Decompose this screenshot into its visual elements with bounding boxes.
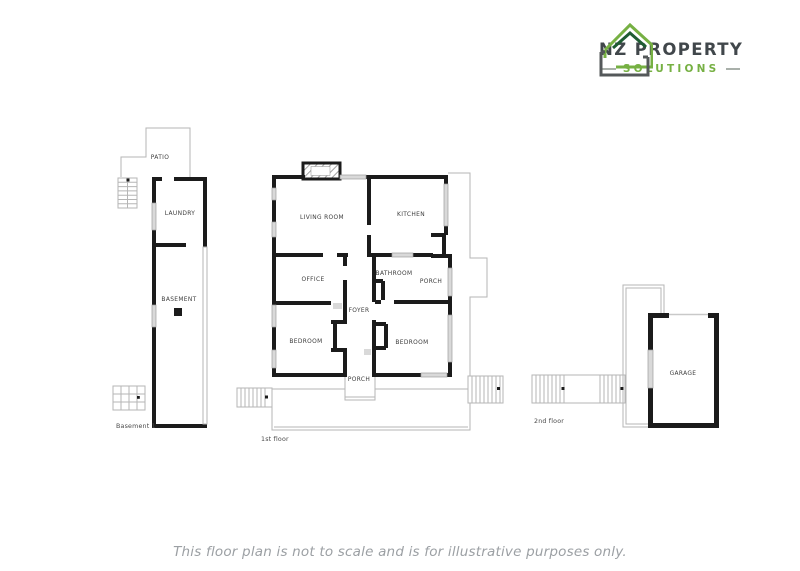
room-label-porch-bottom: PORCH — [348, 377, 370, 383]
room-label-bathroom: BATHROOM — [376, 271, 413, 277]
disclaimer-text: This floor plan is not to scale and is f… — [0, 544, 800, 560]
room-label-living-room: LIVING ROOM — [300, 215, 344, 221]
room-label-kitchen: KITCHEN — [397, 212, 425, 218]
basement-column — [174, 308, 182, 316]
plan-caption-first-floor: 1st floor — [261, 436, 289, 443]
stair-direction-marker — [265, 396, 268, 399]
room-label-bedroom-left: BEDROOM — [289, 339, 322, 345]
stair-direction-marker — [621, 387, 624, 390]
fireplace — [303, 163, 340, 179]
second-floor-landing-outline — [623, 285, 664, 427]
plan-caption-basement: Basement 1 — [116, 423, 156, 430]
room-label-patio: PATIO — [151, 155, 169, 161]
garage-window — [648, 350, 653, 388]
stair-direction-marker — [137, 396, 140, 399]
second-floor-walkway-stairs — [532, 375, 625, 403]
room-label-laundry: LAUNDRY — [165, 211, 196, 217]
stair-direction-marker — [127, 179, 130, 182]
room-label-basement: BASEMENT — [161, 297, 196, 303]
stair-direction-marker — [562, 387, 565, 390]
first-floor-plan: LIVING ROOM KITCHEN OFFICE BATHROOM PORC… — [237, 163, 503, 443]
first-floor-windows — [272, 175, 452, 377]
basement-plan: PATIO LAUNDRY BASEMENT Basement 1 — [113, 128, 207, 430]
room-label-porch-right: PORCH — [420, 279, 442, 285]
basement-stairs-icon — [113, 386, 145, 410]
second-floor-plan: GARAGE 2nd floor — [532, 285, 719, 428]
patio-outline — [121, 128, 190, 177]
plan-caption-second-floor: 2nd floor — [534, 418, 564, 425]
room-label-foyer: FOYER — [349, 308, 370, 314]
room-label-bedroom-right: BEDROOM — [395, 340, 428, 346]
basement-exterior-stairs — [118, 178, 137, 208]
stair-direction-marker — [497, 387, 500, 390]
first-floor-walls — [272, 175, 452, 377]
floor-plan-canvas: PATIO LAUNDRY BASEMENT Basement 1 — [0, 0, 800, 571]
room-label-garage: GARAGE — [670, 371, 697, 377]
room-label-office: OFFICE — [301, 277, 324, 283]
